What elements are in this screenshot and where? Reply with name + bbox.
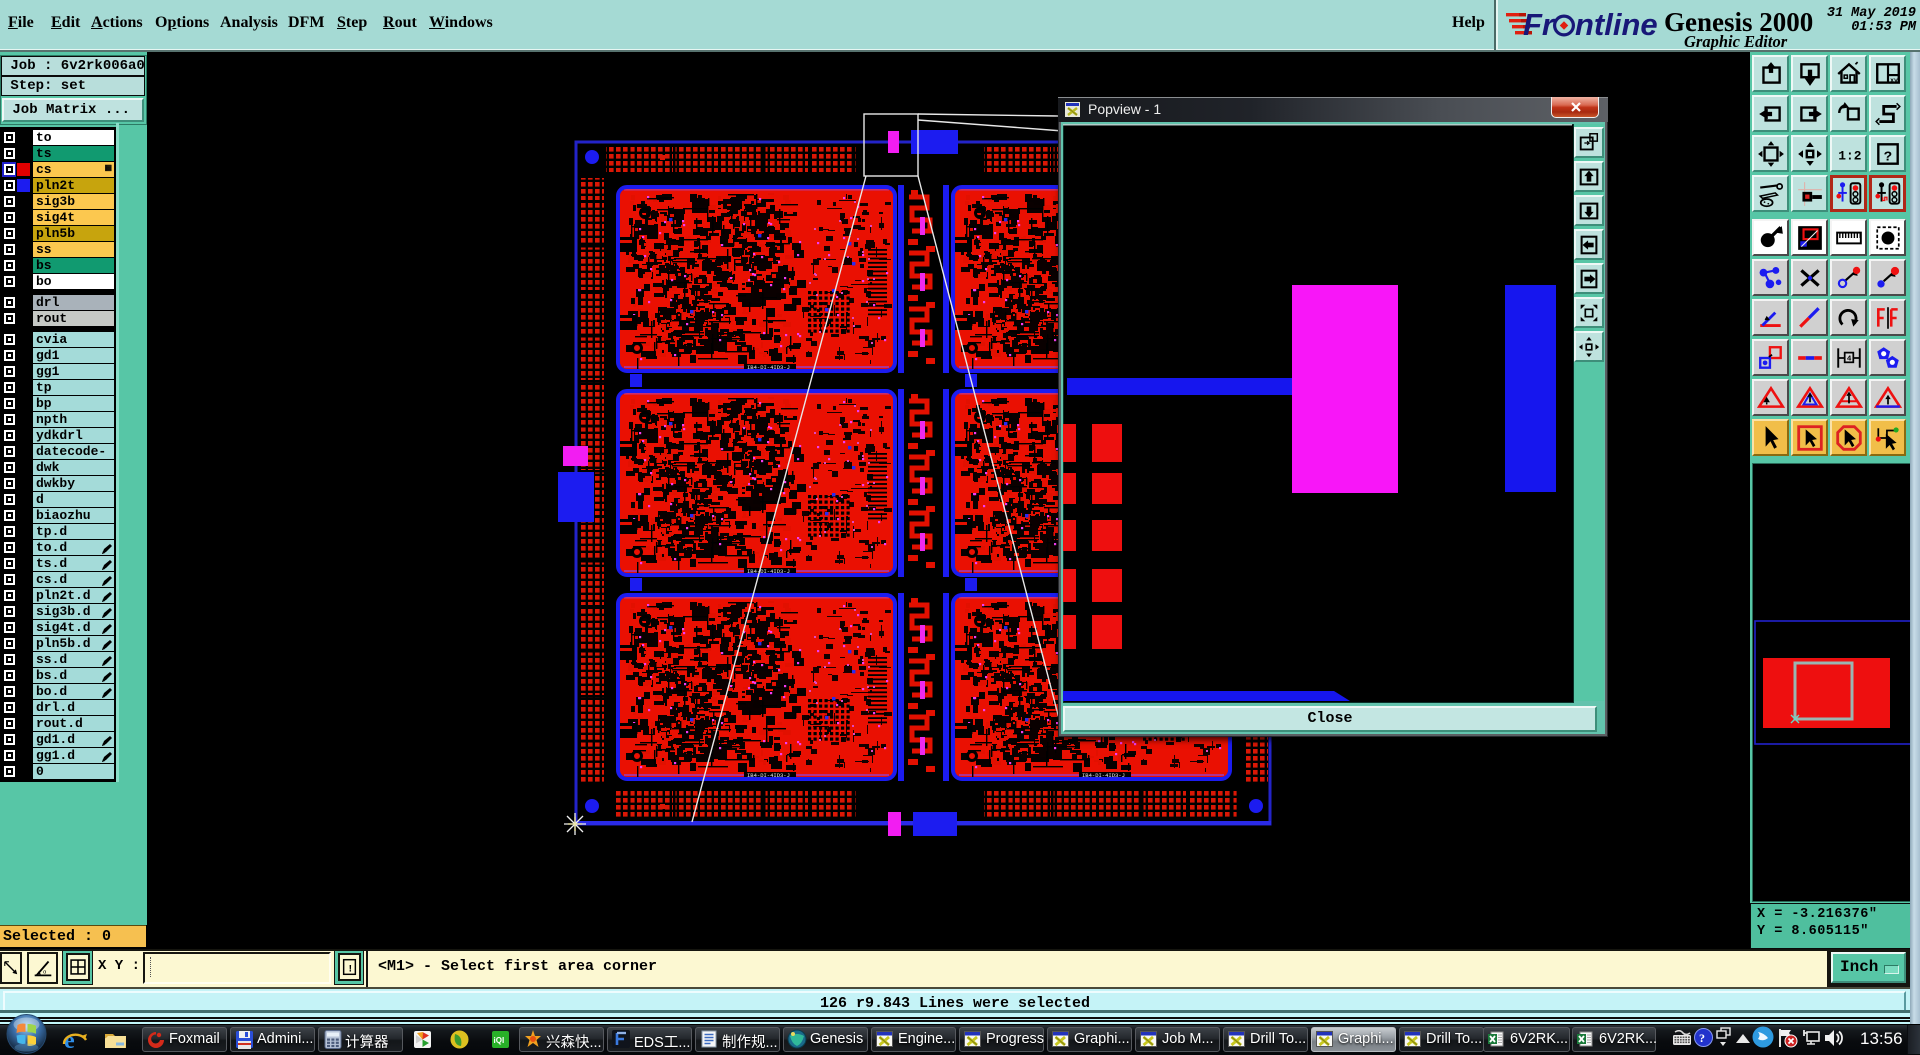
svg-text:Graphic Editor: Graphic Editor [1684, 32, 1788, 50]
svg-text:01:53 PM: 01:53 PM [1851, 20, 1917, 35]
svg-text:31 May 2019: 31 May 2019 [1827, 6, 1916, 21]
svg-text:4: 4 [1846, 355, 1851, 363]
svg-text:ntline: ntline [1575, 7, 1658, 42]
svg-text:xy: xy [1890, 77, 1898, 84]
svg-text:1:2: 1:2 [1838, 148, 1861, 163]
svg-text:!: ! [347, 963, 353, 975]
svg-text:?: ? [1699, 1031, 1705, 1045]
svg-text:?: ? [1883, 149, 1891, 165]
svg-text:Fr: Fr [1523, 7, 1556, 42]
svg-text:iQI: iQI [494, 1036, 505, 1045]
